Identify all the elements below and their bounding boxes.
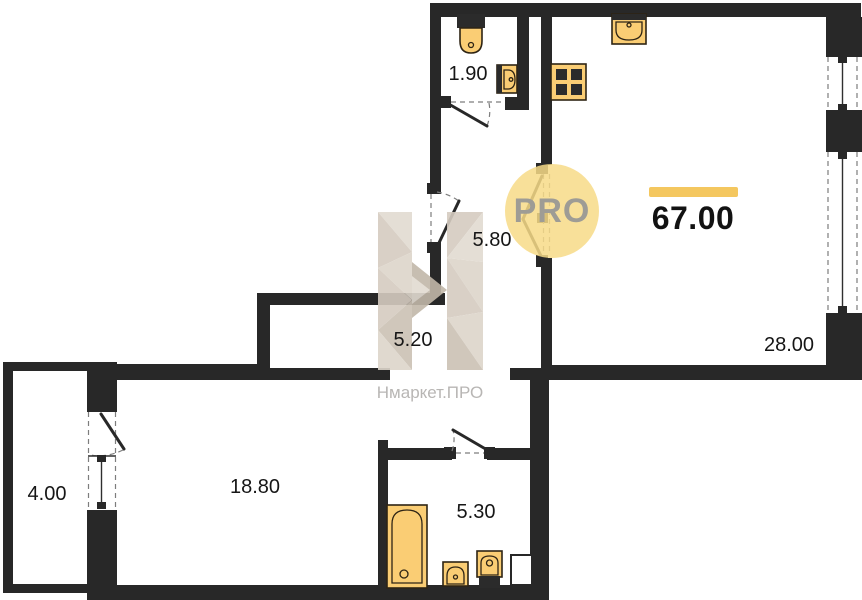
wall-balcony-top	[3, 362, 87, 371]
wc-door-leaf	[447, 103, 487, 126]
wall-left-upper	[430, 17, 441, 188]
wall-right-block-2	[826, 110, 862, 152]
wall-balcony-left	[3, 362, 13, 593]
stove-icon	[551, 64, 586, 100]
brand-watermark-text: Нмаркет.ПРО	[330, 383, 530, 403]
wc-door	[440, 96, 517, 126]
wall-bathroom-top-left	[378, 448, 452, 460]
window-right-lower	[828, 152, 857, 313]
total-area-accent-bar	[649, 187, 738, 197]
kitchen-sink-icon	[612, 14, 646, 44]
bathtub-icon	[387, 505, 427, 588]
balcony-door-window-unit	[88, 412, 124, 510]
floor-plan-drawing	[0, 0, 862, 600]
wall-corridor-bottom	[270, 368, 390, 380]
wall-duct-notch	[511, 555, 532, 585]
area-label-bedroom: 18.80	[217, 476, 293, 499]
wall-hall-living-lower	[541, 258, 552, 380]
area-label-bathroom: 5.30	[438, 501, 514, 524]
area-label-balcony: 4.00	[9, 483, 85, 506]
area-label-wc: 1.90	[430, 63, 506, 86]
total-area-label: 67.00	[633, 200, 753, 237]
bathroom-door-leaf	[453, 430, 489, 451]
bathroom-sink-icon	[443, 562, 468, 586]
bathroom-toilet-icon	[477, 551, 502, 588]
wall-wc-right	[517, 17, 529, 110]
floor-plan: 1.90 5.80 5.20 28.00 18.80 4.00 5.30 67.…	[0, 0, 862, 600]
bathroom-door	[444, 430, 495, 459]
balcony-door-leaf	[101, 414, 124, 449]
window-right-upper	[828, 57, 857, 110]
wall-living-bottom	[541, 365, 862, 380]
wall-bedroom-top	[87, 364, 257, 380]
area-label-kitchen-living: 28.00	[751, 334, 827, 357]
pro-badge: PRO	[505, 164, 599, 258]
area-label-corridor: 5.20	[375, 329, 451, 352]
wall-right-block-1	[826, 17, 862, 57]
pro-badge-text: PRO	[514, 192, 591, 231]
wall-corridor-left	[257, 295, 270, 380]
toilet-icon	[457, 14, 485, 53]
wall-balcony-bottom	[3, 584, 87, 593]
